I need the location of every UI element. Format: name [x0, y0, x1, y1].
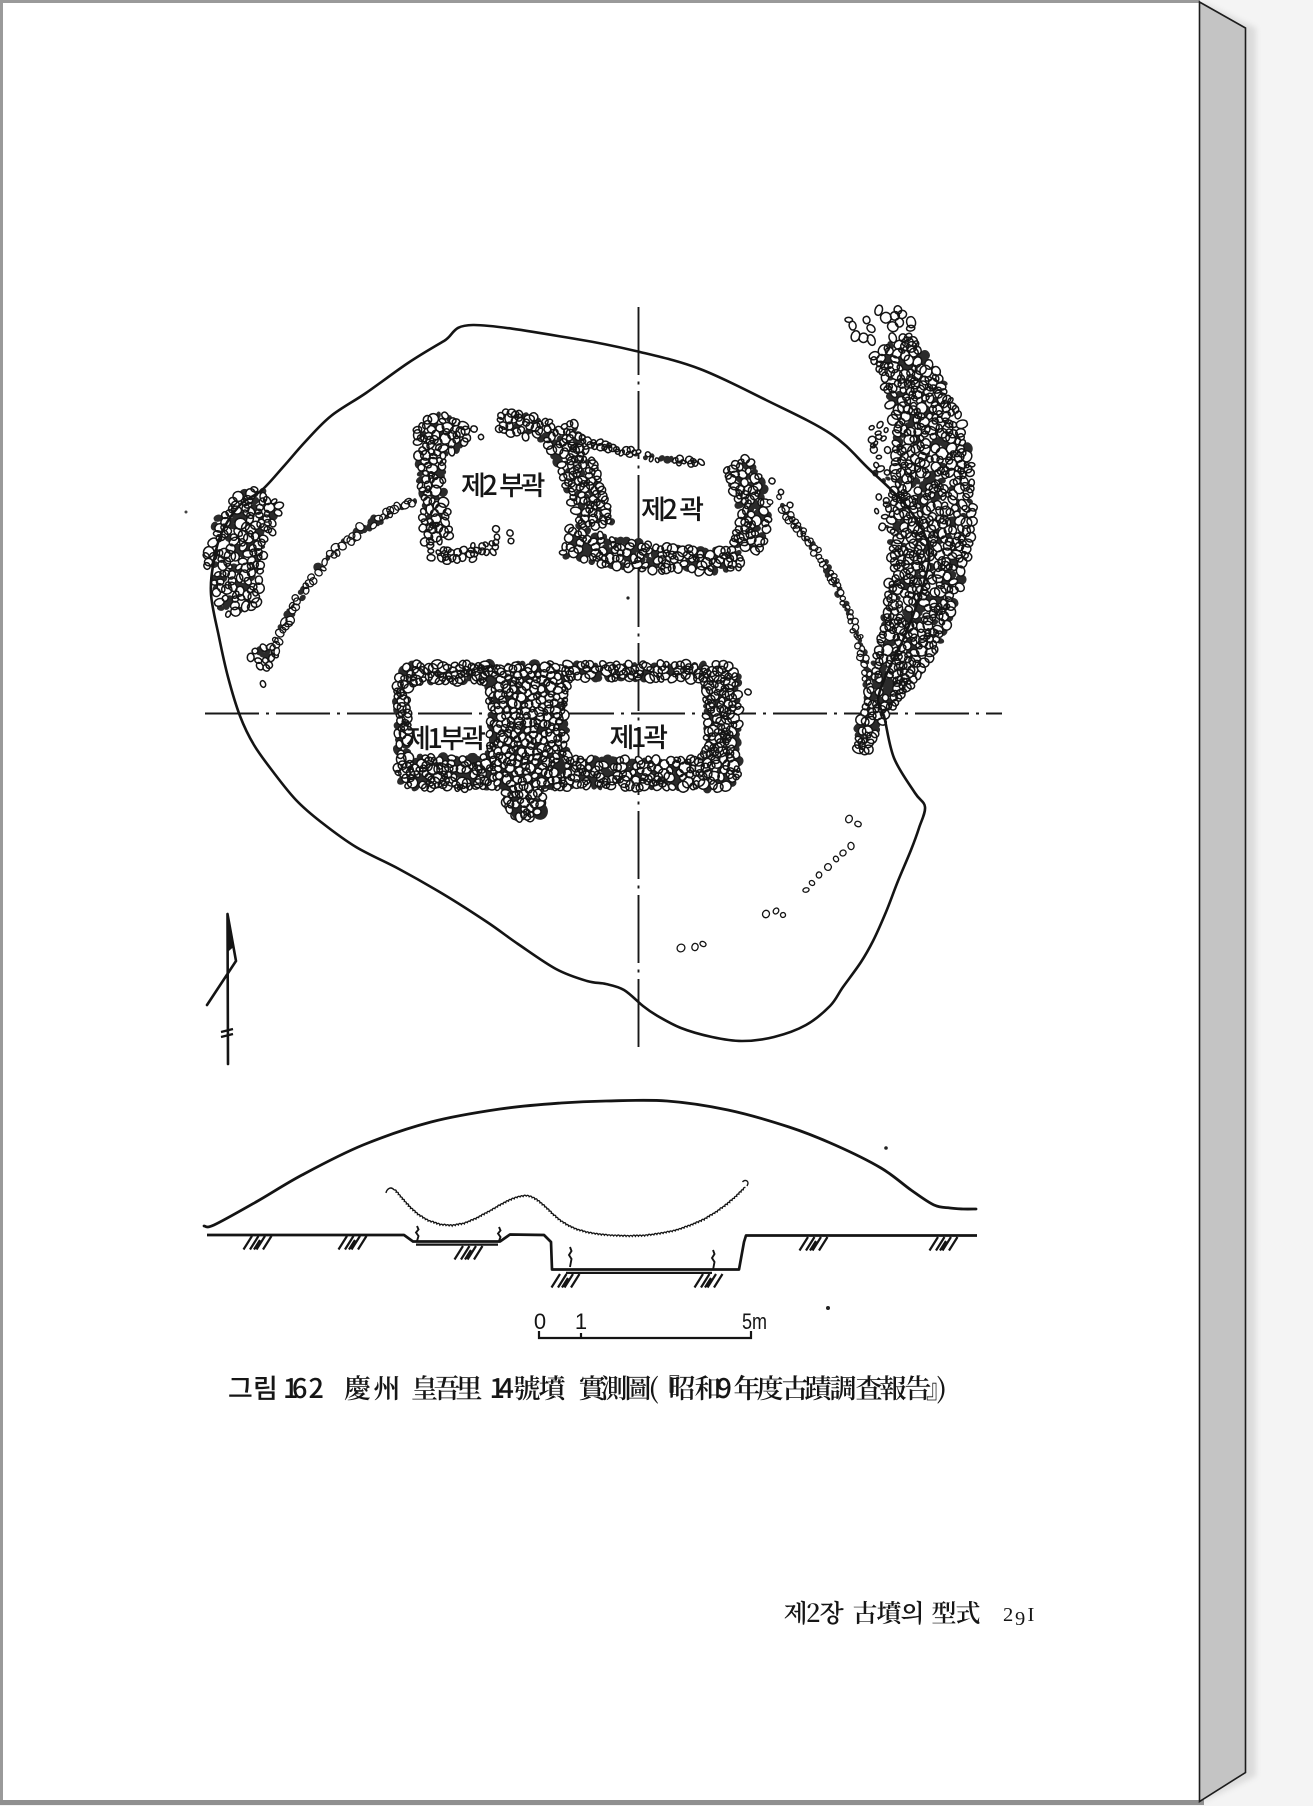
svg-text:1: 1	[575, 1309, 587, 1334]
svg-text:I: I	[1028, 1604, 1035, 1626]
svg-text:0: 0	[534, 1309, 546, 1334]
svg-text:9: 9	[1015, 1608, 1025, 1630]
svg-text:5m: 5m	[742, 1309, 767, 1334]
svg-text:2: 2	[1003, 1604, 1013, 1626]
